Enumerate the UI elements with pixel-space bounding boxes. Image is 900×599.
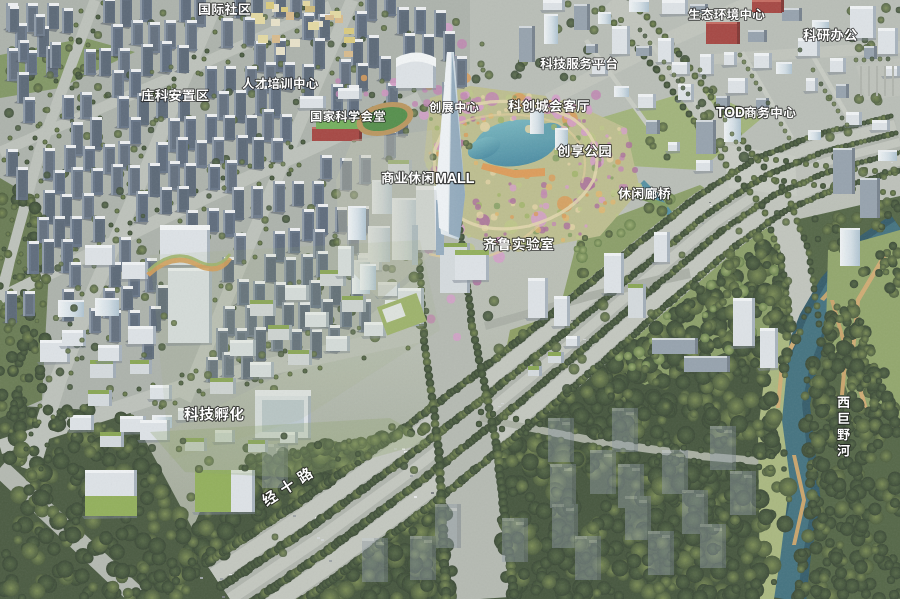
svg-text:MALL: MALL xyxy=(435,170,475,186)
svg-text:TOD: TOD xyxy=(716,105,745,120)
